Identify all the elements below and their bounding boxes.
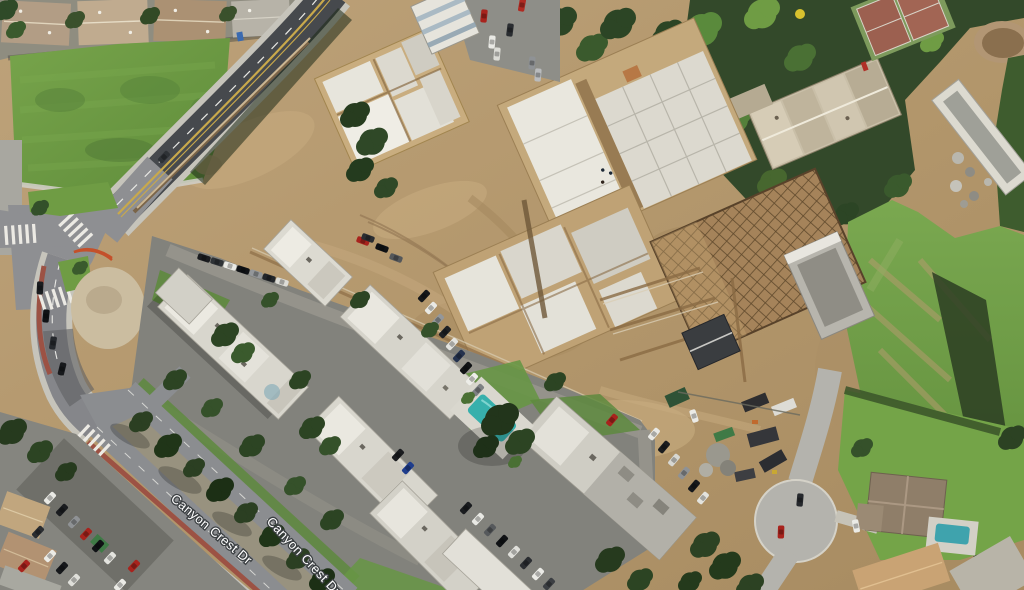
satellite-map[interactable]: Canyon Crest Dr Canyon Crest Dr (0, 0, 1024, 590)
